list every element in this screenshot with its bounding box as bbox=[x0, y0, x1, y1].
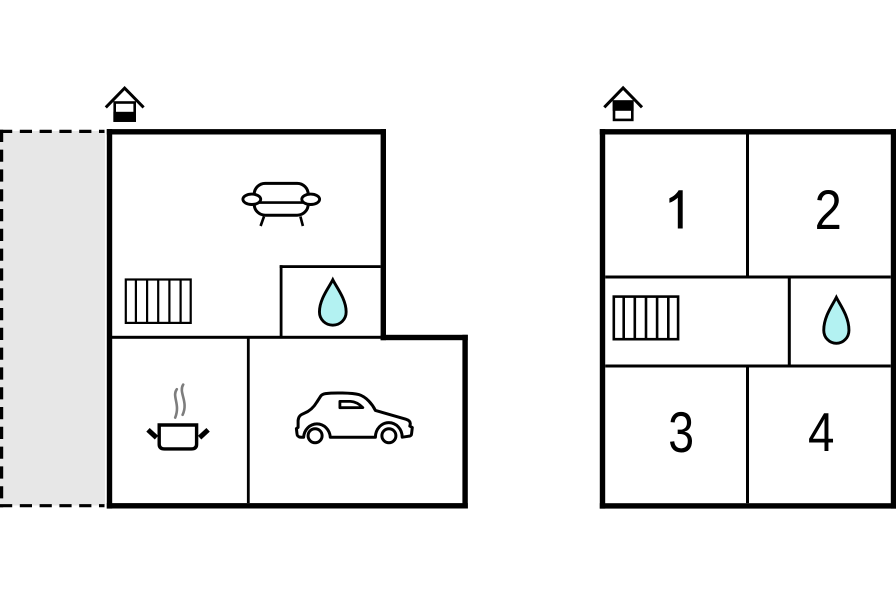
svg-text:4: 4 bbox=[808, 402, 834, 463]
svg-text:3: 3 bbox=[668, 402, 694, 466]
svg-text:2: 2 bbox=[815, 179, 842, 242]
